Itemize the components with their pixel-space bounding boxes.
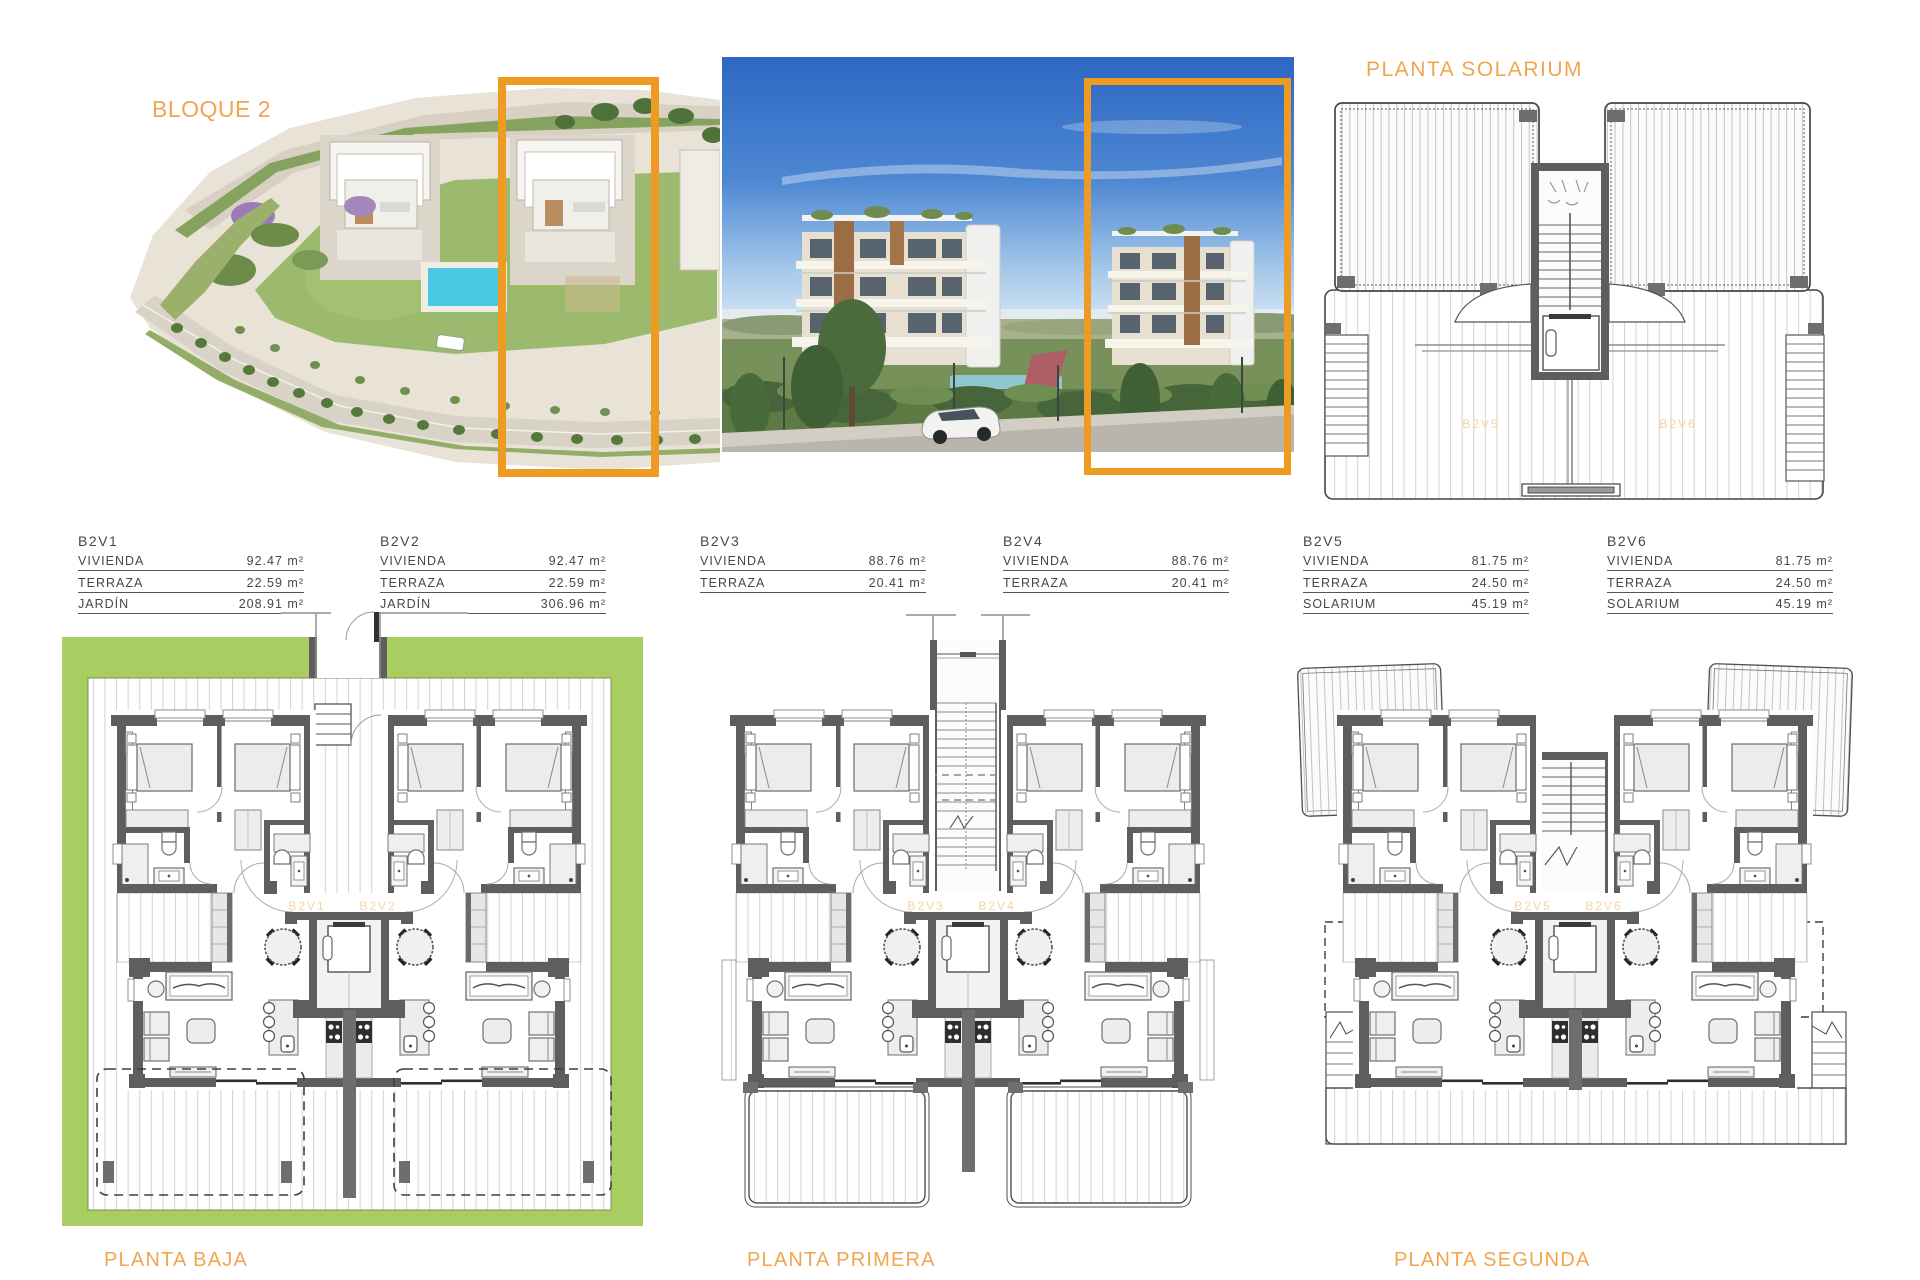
svg-text:B2V4: B2V4 (978, 899, 1015, 913)
svg-text:B2V2: B2V2 (359, 899, 396, 913)
svg-text:B2V1: B2V1 (288, 899, 325, 913)
svg-text:B2V6: B2V6 (1585, 899, 1622, 913)
svg-text:B2V5: B2V5 (1514, 899, 1551, 913)
svg-text:B2V5: B2V5 (1462, 417, 1499, 431)
svg-text:B2V6: B2V6 (1659, 417, 1696, 431)
svg-text:B2V3: B2V3 (907, 899, 944, 913)
